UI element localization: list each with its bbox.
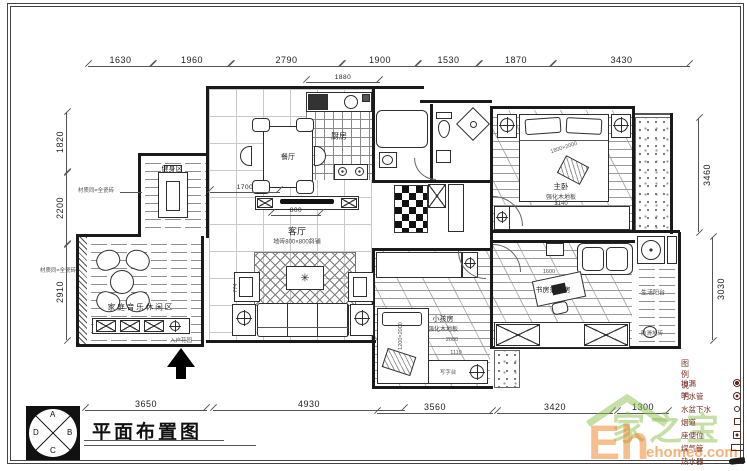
wall (206, 156, 209, 238)
label-master-floor: 强化木地板 (546, 192, 576, 201)
cabinet-xbox (144, 320, 164, 332)
wall (490, 230, 635, 233)
floor-hallway-checker (394, 185, 428, 233)
title-underline-2 (84, 445, 256, 446)
label-dining: 餐厅 (281, 152, 295, 162)
tv-set (280, 199, 334, 204)
label-master: 主卧 强化木地板 3140 (546, 181, 576, 207)
sink-bowl (382, 155, 393, 165)
bathroom-sink (436, 150, 451, 163)
legend-row: 热水器 (681, 456, 747, 467)
label-master-name: 主卧 (546, 181, 576, 192)
dim-bottom-3: 3560 (377, 413, 493, 414)
dim-top-5: 1530 (418, 66, 479, 67)
cabinet-xbox (120, 320, 140, 332)
entry-arrow-icon (167, 348, 195, 367)
armchair-cushion (239, 277, 253, 297)
label-kids-floor: 强化木地板 (428, 324, 458, 333)
shower-drain (470, 121, 477, 128)
kids-bed-size: 1200×2000 (398, 322, 404, 350)
note-left-upper: 材质同=全瓷砖 (78, 186, 114, 194)
flue-box (362, 94, 370, 102)
lamp-icon (614, 118, 628, 132)
dining-chair (252, 118, 270, 132)
legend-row: 水盆下水 (681, 404, 747, 415)
cabinet-xbox (96, 320, 116, 332)
kids-wardrobe (376, 252, 462, 278)
shaft-xbox (428, 184, 446, 208)
wall (138, 153, 141, 237)
wall (201, 236, 204, 346)
study-shelf (546, 243, 564, 256)
wardrobe-xbox (584, 324, 628, 346)
label-fitness: 健身区 (162, 164, 183, 174)
compass-letter-bottom: C (50, 446, 56, 455)
dim-top-6: 1870 (479, 66, 553, 67)
label-music-room: 家庭音乐休闲区 (108, 302, 175, 313)
dim-kitchen-1880: 1880 (306, 82, 380, 83)
legend-row: 地漏 (681, 378, 747, 389)
dim-left-3: 2910 (66, 244, 67, 340)
wall (76, 344, 204, 347)
pillow (566, 117, 603, 135)
dim-top-4: 1900 (342, 66, 418, 67)
legend-row: 烟道 (681, 417, 747, 428)
dim-living-774: 774 (233, 283, 239, 292)
legend-row: 下水管 (681, 391, 747, 402)
drain-pipe-icon (733, 392, 741, 400)
dim-bottom-4: 3420 (497, 413, 613, 414)
burner (338, 167, 347, 176)
water-heater-icon (729, 457, 746, 465)
kids-desk-label: 写字台 (440, 368, 457, 376)
floor-drain-icon (733, 379, 741, 387)
gas-pipe-icon (731, 444, 744, 451)
wall (670, 113, 673, 234)
toilet-tank (436, 112, 452, 119)
label-kids: 小孩房 强化木地板 (428, 314, 458, 333)
pillow (524, 117, 561, 135)
wall (140, 153, 209, 156)
leader-line (120, 192, 142, 193)
compass-letter-left: D (33, 428, 39, 437)
floor-kids-balcony (494, 350, 520, 388)
label-living-floor: 地砖800×800斜铺 (273, 237, 321, 246)
dim-study-1600: 1600 (543, 269, 555, 275)
ceiling-fan-icon (470, 365, 484, 379)
round-table (110, 270, 134, 294)
wall (76, 234, 79, 347)
drain-icon (170, 321, 180, 331)
label-laundry-floor: 防滑地砖 (641, 329, 663, 337)
orientation-compass: A B C D (26, 406, 80, 460)
dim-bottom-5: 1300 (617, 413, 669, 414)
dim-right-2: 3030 (712, 237, 713, 340)
floor-master-balcony (635, 117, 672, 232)
dim-kids-1110: 1110 (450, 350, 461, 356)
console-xbox (341, 198, 357, 208)
title-underline (84, 440, 224, 441)
label-kids-name: 小孩房 (428, 314, 458, 324)
dim-top-3: 2790 (231, 66, 342, 67)
kitchen-stove (308, 94, 328, 110)
sofa-front-line (258, 327, 348, 328)
dining-chair (296, 118, 314, 132)
treadmill-belt (166, 181, 180, 211)
laundry-cabinet (667, 236, 677, 264)
dim-master-3140: 3140 (546, 201, 576, 207)
dining-chair (296, 180, 314, 194)
toilet-position-icon (733, 431, 741, 439)
wardrobe-xbox (496, 324, 540, 346)
legend-row: 座便位 (681, 430, 747, 441)
rug-star-motif: ✳ (300, 272, 309, 285)
blanket-line (520, 140, 608, 141)
wall (372, 89, 375, 182)
legend-row: 煤气管 (681, 443, 747, 454)
lamp-icon (355, 311, 369, 325)
music-room-wall-hatch (79, 237, 87, 344)
entry-arrow-stem (176, 366, 186, 379)
dim-top-2: 1960 (153, 66, 231, 67)
dim-tv-800: 800 (271, 215, 321, 216)
note-entry: 入户花园 (170, 336, 192, 344)
label-kitchen: 厨房 (331, 131, 347, 142)
wall (206, 86, 209, 156)
dim-kids-2080: 2080 (446, 337, 458, 343)
wall (632, 108, 635, 232)
compass-letter-right: B (67, 428, 72, 437)
dim-right-1: 3460 (698, 118, 699, 232)
wall (678, 232, 681, 348)
dim-left-1: 1820 (66, 112, 67, 172)
label-study: 书房兼客房 (536, 285, 571, 295)
wall (420, 100, 492, 103)
lamp-icon (500, 118, 514, 132)
bathtub (376, 110, 428, 148)
flue-icon (734, 418, 741, 425)
sofa (257, 303, 349, 337)
wall (630, 230, 680, 233)
label-laundry: 生活阳台 (641, 288, 665, 297)
hall-closet (448, 184, 464, 232)
armchair-cushion (353, 277, 367, 297)
wall (78, 234, 141, 237)
wall (372, 386, 493, 389)
wall (206, 86, 424, 89)
wall (206, 340, 376, 343)
wall (490, 106, 635, 109)
sofa-cushion (582, 247, 604, 271)
dim-left-2: 2200 (66, 172, 67, 244)
compass-letter-top: A (50, 410, 55, 419)
dim-top-7: 3430 (553, 66, 690, 67)
burner (355, 167, 364, 176)
dim-top-1: 1630 (88, 66, 153, 67)
note-left-lower: 材质同=全瓷砖 (40, 266, 76, 274)
lamp-icon (237, 311, 251, 325)
kitchen-sink (344, 95, 358, 109)
sofa-cushion (606, 247, 628, 271)
window-line (633, 113, 673, 115)
washer-drum (641, 240, 661, 260)
basin-drain-icon (734, 406, 740, 412)
dim-bottom-1: 3650 (85, 410, 207, 411)
floor-plan-page: { "title_block": { "title": "平面布置图" }, "… (0, 0, 747, 469)
dim-dining-1700: 1700 (210, 192, 280, 193)
